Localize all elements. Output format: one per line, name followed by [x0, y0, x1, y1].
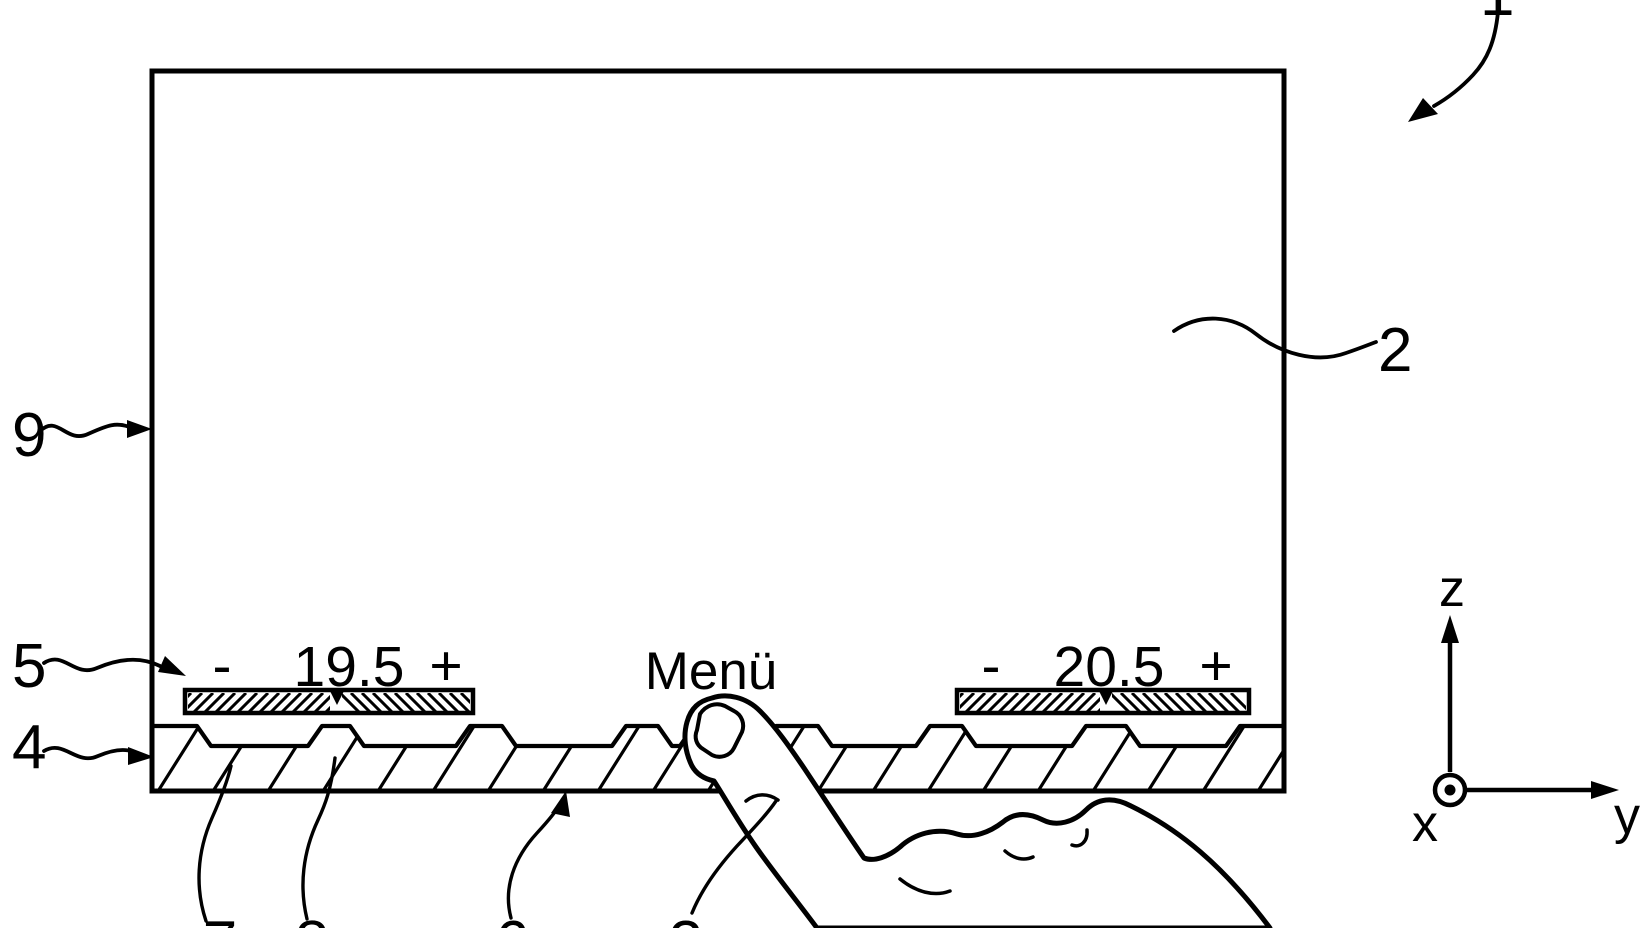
ref-label-3: 3: [669, 909, 703, 928]
pointing-hand: [685, 696, 1270, 928]
left-plus-button[interactable]: +: [429, 634, 462, 698]
left-minus-button[interactable]: -: [213, 634, 232, 698]
ref-leader-4: [44, 748, 134, 758]
ref-leader-8: [303, 758, 335, 919]
screen-controls: - 19.5 + Menü - 20.5 +: [213, 634, 1233, 701]
left-temp-value: 19.5: [294, 635, 405, 699]
patent-drawing: z x y - 19.5 + Menü - 20.5 + 9 5 4 2 1 7…: [0, 0, 1650, 928]
menu-button[interactable]: Menü: [645, 642, 778, 701]
ref-label-5: 5: [12, 632, 46, 701]
right-temp-value: 20.5: [1054, 635, 1165, 699]
x-axis-origin-dot: [1445, 785, 1456, 796]
ref-label-6: 6: [495, 909, 529, 928]
coordinate-axes: z x y: [1412, 560, 1640, 853]
z-axis-arrowhead: [1441, 615, 1459, 643]
right-minus-button[interactable]: -: [982, 634, 1001, 698]
ref-label-1: 1: [1480, 0, 1514, 29]
ref-arrowhead-5: [158, 656, 186, 676]
hand-outline: [685, 696, 1270, 928]
ref-leader-6: [508, 803, 561, 918]
z-axis-label: z: [1439, 560, 1465, 618]
x-axis-label: x: [1412, 795, 1438, 853]
ref-leader-5: [44, 659, 160, 670]
right-plus-button[interactable]: +: [1199, 634, 1232, 698]
ref-label-8: 8: [295, 909, 329, 928]
ref-leader-2: [1174, 319, 1376, 358]
ref-label-9: 9: [12, 401, 46, 470]
ref-arrowhead-1: [1408, 98, 1438, 122]
ref-arrowhead-6: [551, 791, 570, 817]
ref-label-2: 2: [1378, 316, 1412, 385]
ref-leader-9: [40, 425, 132, 436]
patent-figure-canvas: z x y - 19.5 + Menü - 20.5 + 9 5 4 2 1 7…: [0, 0, 1650, 928]
ref-label-7: 7: [203, 909, 237, 928]
ref-label-4: 4: [12, 713, 46, 782]
ref-arrowhead-9: [127, 420, 152, 438]
y-axis-label: y: [1614, 787, 1640, 845]
